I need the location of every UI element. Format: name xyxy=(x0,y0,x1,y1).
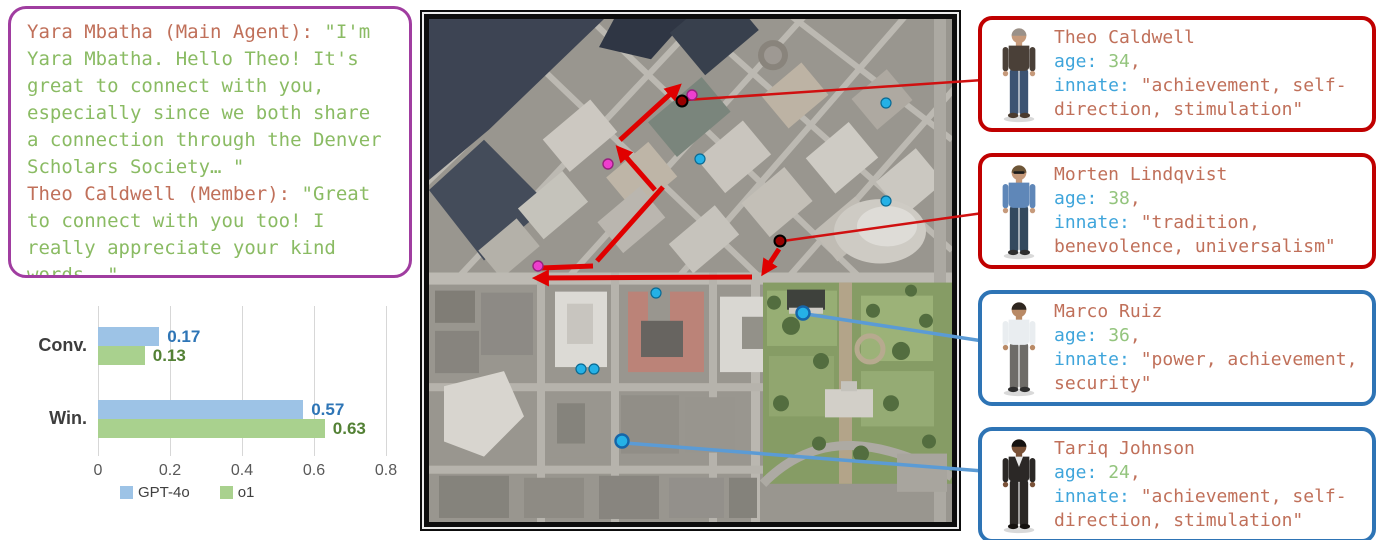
legend-swatch xyxy=(220,486,233,499)
agent-avatar xyxy=(992,24,1046,124)
agent-innate-line: innate: "tradition, benevolence, univers… xyxy=(1054,211,1364,259)
figure-root: Yara Mbatha (Main Agent): "I'm Yara Mbat… xyxy=(0,0,1380,540)
bar-value-label: 0.63 xyxy=(333,419,366,438)
x-tick-label: 0.8 xyxy=(364,462,408,480)
agent-card: Morten Lindqvist age: 38, innate: "tradi… xyxy=(978,153,1376,269)
agent-innate-line: innate: "power, achievement, security" xyxy=(1054,348,1364,396)
chart-bar-o1 xyxy=(98,419,325,438)
category-label: Conv. xyxy=(25,335,87,356)
agent-name: Morten Lindqvist xyxy=(1054,163,1364,187)
agent-avatar xyxy=(992,435,1046,535)
agent-card: Theo Caldwell age: 34, innate: "achievem… xyxy=(978,16,1376,132)
agent-card: Marco Ruiz age: 36, innate: "power, achi… xyxy=(978,290,1376,406)
avatar-shadow xyxy=(1004,116,1035,122)
agent-age-line: age: 36, xyxy=(1054,324,1364,348)
chart-bar-GPT-4o xyxy=(98,400,303,419)
agent-name: Tariq Johnson xyxy=(1054,437,1364,461)
satellite-map xyxy=(429,19,952,522)
chart-bar-o1 xyxy=(98,346,145,365)
agent-card-text: Tariq Johnson age: 24, innate: "achievem… xyxy=(1054,437,1364,533)
bar-value-label: 0.57 xyxy=(311,400,344,419)
bar-value-label: 0.13 xyxy=(153,346,186,365)
avatar-shadow xyxy=(1004,390,1035,396)
agent-avatar xyxy=(992,161,1046,261)
agent-age-line: age: 34, xyxy=(1054,50,1364,74)
legend-item: GPT-4o xyxy=(120,484,190,501)
agent-card: Tariq Johnson age: 24, innate: "achievem… xyxy=(978,427,1376,540)
category-label: Win. xyxy=(25,408,87,429)
legend-swatch xyxy=(120,486,133,499)
x-tick-label: 0.6 xyxy=(292,462,336,480)
chart-legend: GPT-4oo1 xyxy=(120,484,254,501)
legend-label: GPT-4o xyxy=(138,484,190,501)
agent-avatar xyxy=(992,298,1046,398)
map-tone xyxy=(429,19,952,522)
x-tick-label: 0 xyxy=(76,462,120,480)
dialogue-quote: "I'm Yara Mbatha. Hello Theo! It's great… xyxy=(27,21,393,178)
map xyxy=(420,10,961,531)
x-tick-label: 0.4 xyxy=(220,462,264,480)
agent-name: Marco Ruiz xyxy=(1054,300,1364,324)
agent-age-line: age: 24, xyxy=(1054,461,1364,485)
avatar-shadow xyxy=(1004,253,1035,259)
agent-cards: Theo Caldwell age: 34, innate: "achievem… xyxy=(978,16,1376,540)
legend-item: o1 xyxy=(220,484,255,501)
chart-bar-GPT-4o xyxy=(98,327,159,346)
chart-gridline xyxy=(386,306,387,456)
avatar-shadow xyxy=(1004,527,1035,533)
agent-innate-line: innate: "achievement, self-direction, st… xyxy=(1054,74,1364,122)
legend-label: o1 xyxy=(238,484,255,501)
agent-card-text: Theo Caldwell age: 34, innate: "achievem… xyxy=(1054,26,1364,122)
dialogue-speaker: Yara Mbatha (Main Agent): xyxy=(27,21,313,43)
bar-chart: 00.20.40.60.8Conv.Win.0.170.570.130.63GP… xyxy=(0,298,430,540)
agent-age-line: age: 38, xyxy=(1054,187,1364,211)
agent-name: Theo Caldwell xyxy=(1054,26,1364,50)
x-tick-label: 0.2 xyxy=(148,462,192,480)
sunglasses-icon xyxy=(1013,171,1024,174)
dialogue-speaker: Theo Caldwell (Member): xyxy=(27,183,290,205)
dialogue-box: Yara Mbatha (Main Agent): "I'm Yara Mbat… xyxy=(8,6,412,278)
agent-card-text: Marco Ruiz age: 36, innate: "power, achi… xyxy=(1054,300,1364,396)
map-border xyxy=(424,14,957,527)
agent-innate-line: innate: "achievement, self-direction, st… xyxy=(1054,485,1364,533)
bar-value-label: 0.17 xyxy=(167,327,200,346)
agent-card-text: Morten Lindqvist age: 38, innate: "tradi… xyxy=(1054,163,1364,259)
